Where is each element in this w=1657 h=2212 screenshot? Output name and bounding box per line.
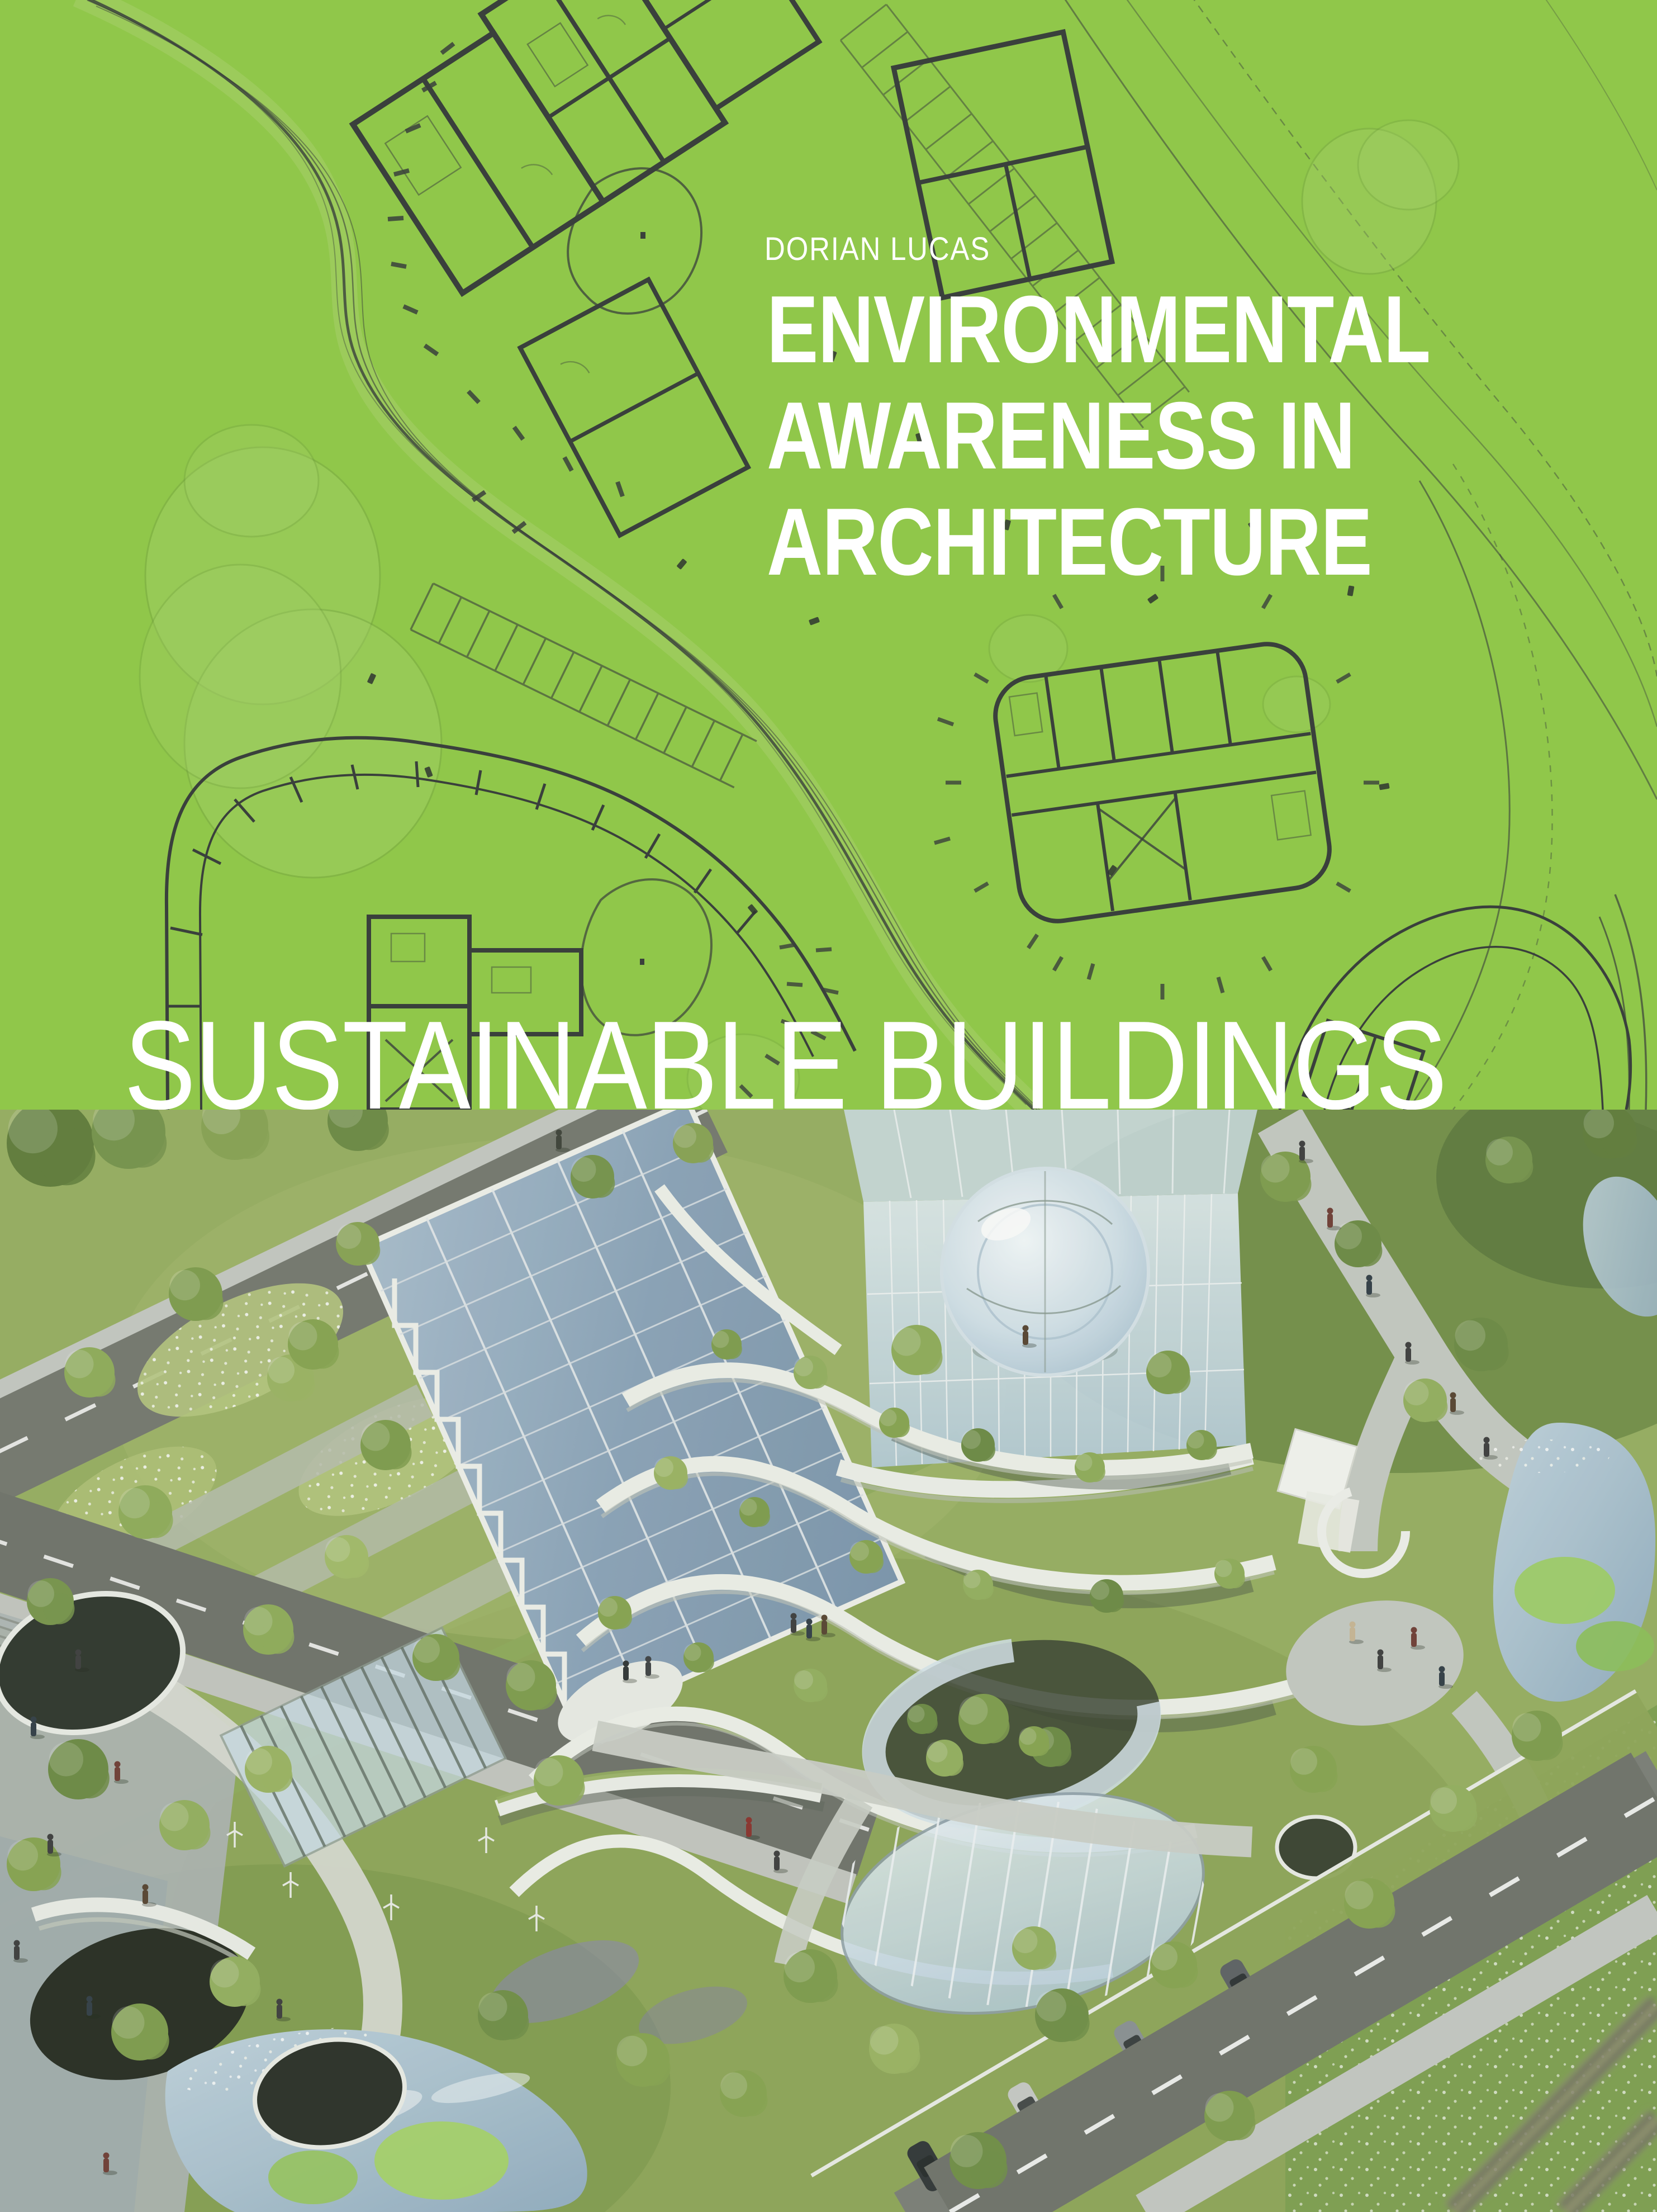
- cover-photo-aerial-rendering: [0, 1110, 1657, 2212]
- title-line-3: ARCHITECTURE: [767, 489, 1430, 595]
- photo-color-grade: [0, 1110, 1657, 2212]
- title-line-2: AWARENESS IN: [767, 383, 1430, 489]
- aerial-rendering: [0, 1110, 1657, 2212]
- title-line-1: ENVIRONMENTAL: [767, 277, 1430, 383]
- series-title: SUSTAINABLE BUILDINGS: [124, 1001, 1446, 1110]
- author-name: DORIAN LUCAS: [765, 231, 990, 268]
- cover-top-green-panel: DORIAN LUCAS ENVIRONMENTAL AWARENESS IN …: [0, 0, 1657, 1110]
- book-title: ENVIRONMENTAL AWARENESS IN ARCHITECTURE: [767, 277, 1430, 595]
- book-cover: DORIAN LUCAS ENVIRONMENTAL AWARENESS IN …: [0, 0, 1657, 2212]
